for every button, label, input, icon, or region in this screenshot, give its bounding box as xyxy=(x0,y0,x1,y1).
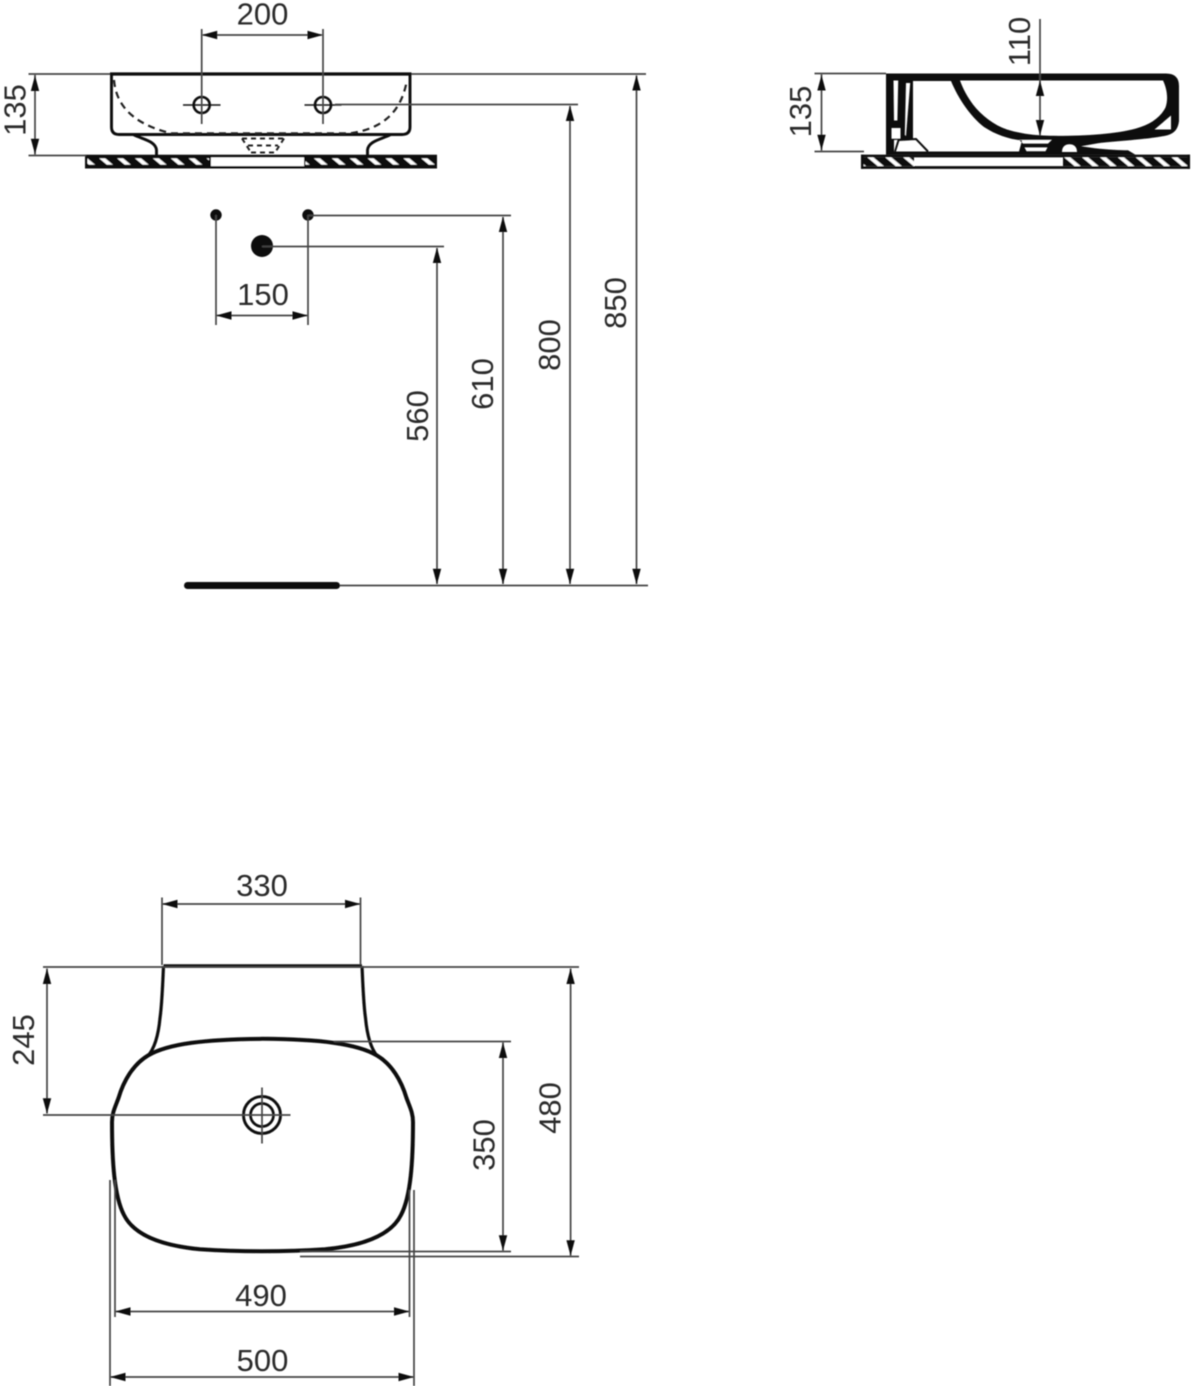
svg-text:850: 850 xyxy=(598,277,633,329)
svg-text:200: 200 xyxy=(237,0,289,32)
svg-text:350: 350 xyxy=(467,1119,502,1171)
svg-text:150: 150 xyxy=(237,277,289,312)
svg-text:560: 560 xyxy=(400,390,435,442)
svg-text:110: 110 xyxy=(1002,17,1037,66)
svg-text:490: 490 xyxy=(235,1278,287,1313)
svg-text:245: 245 xyxy=(6,1014,41,1066)
svg-text:610: 610 xyxy=(465,358,500,410)
svg-text:135: 135 xyxy=(0,84,33,136)
svg-text:135: 135 xyxy=(783,86,818,138)
svg-text:330: 330 xyxy=(236,868,288,903)
svg-text:800: 800 xyxy=(532,319,567,371)
svg-text:500: 500 xyxy=(237,1343,289,1378)
svg-text:480: 480 xyxy=(533,1082,568,1134)
